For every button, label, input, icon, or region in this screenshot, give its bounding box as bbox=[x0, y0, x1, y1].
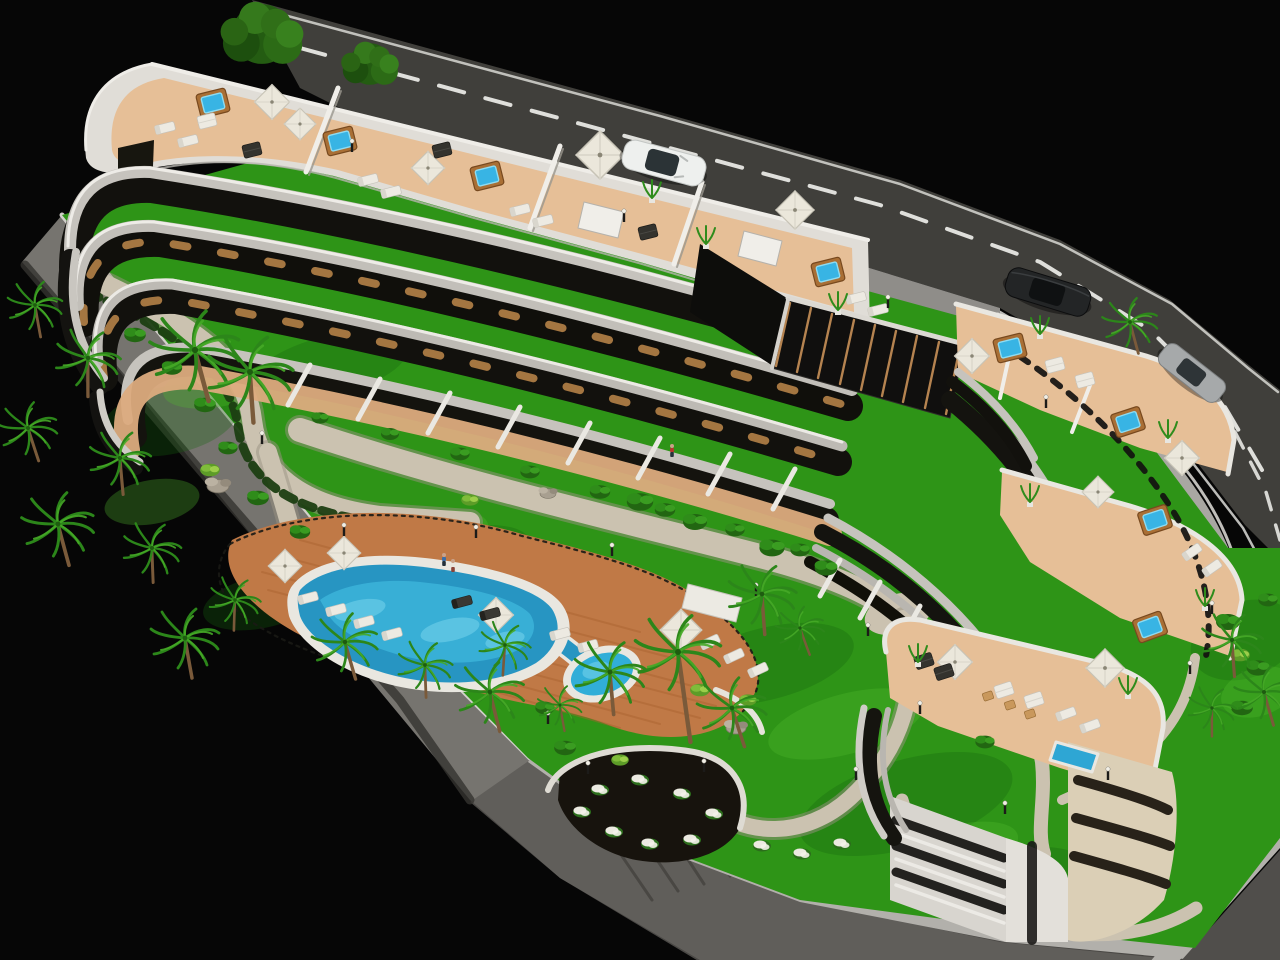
spr-bush bbox=[247, 491, 269, 505]
spr-flw bbox=[591, 785, 609, 796]
spr-bush bbox=[450, 448, 469, 461]
spr-perB bbox=[442, 553, 446, 566]
spr-bush bbox=[790, 544, 809, 557]
spr-flw bbox=[833, 839, 851, 850]
scene-svg: Aerial 3D architectural render of a curv… bbox=[0, 0, 1280, 960]
spr-bush bbox=[554, 741, 576, 755]
spr-bush bbox=[124, 328, 146, 342]
spr-flw bbox=[683, 835, 701, 846]
spr-flw bbox=[753, 841, 771, 852]
spr-bush bbox=[1258, 594, 1277, 607]
spr-flw bbox=[705, 809, 723, 820]
spr-bush bbox=[520, 466, 539, 479]
spr-perR bbox=[670, 444, 674, 457]
spr-bush bbox=[218, 442, 237, 455]
spr-bush bbox=[194, 398, 216, 412]
spr-bush bbox=[815, 560, 838, 575]
spr-bushL bbox=[611, 754, 629, 765]
render-stage: Aerial 3D architectural render of a curv… bbox=[0, 0, 1280, 960]
spr-bush bbox=[290, 525, 310, 539]
spr-flw bbox=[673, 789, 691, 800]
spr-bushL bbox=[200, 464, 220, 477]
spr-flw bbox=[641, 839, 659, 850]
spr-bush bbox=[381, 428, 399, 440]
spr-bush bbox=[683, 514, 707, 530]
spr-flw bbox=[605, 827, 623, 838]
spr-bush bbox=[759, 540, 784, 557]
spr-bush bbox=[655, 503, 675, 517]
spr-perW bbox=[451, 559, 455, 572]
spr-bush bbox=[975, 736, 994, 749]
spr-bush bbox=[725, 524, 744, 537]
spr-bush bbox=[627, 493, 653, 511]
spr-flw bbox=[793, 849, 811, 860]
spr-flw bbox=[631, 775, 649, 786]
spr-bush bbox=[312, 412, 329, 423]
spr-bush bbox=[590, 485, 610, 499]
spr-bushL bbox=[461, 494, 479, 505]
spr-flw bbox=[573, 807, 591, 818]
